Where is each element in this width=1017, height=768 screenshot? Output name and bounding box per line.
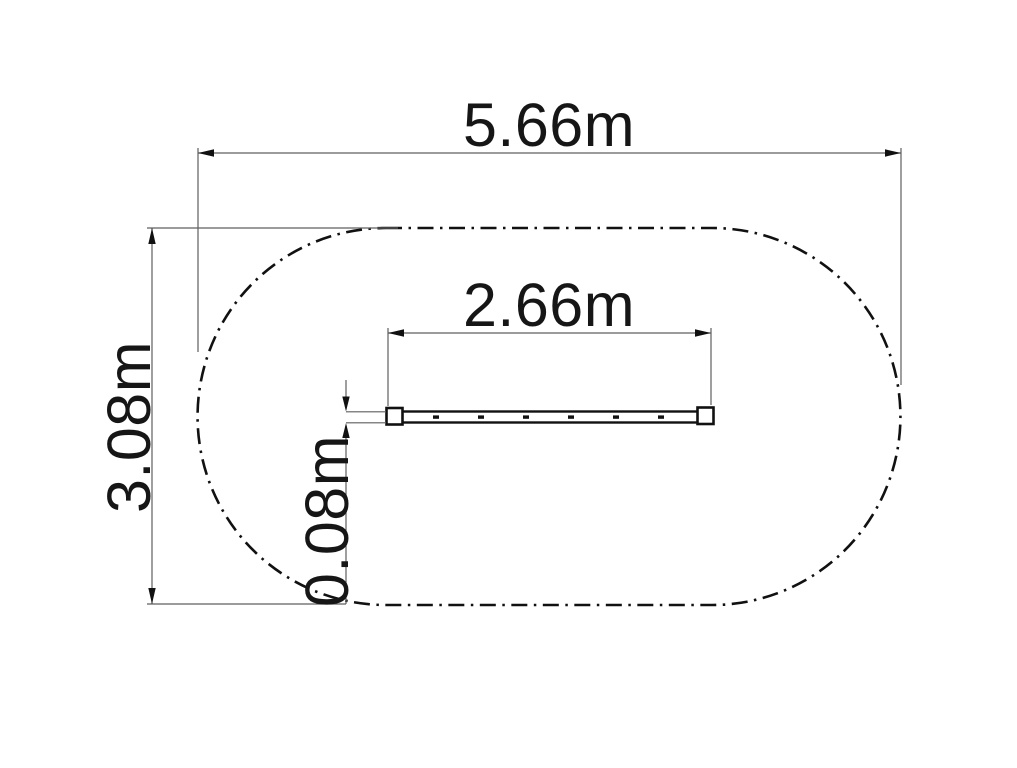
dimension-label-beam-width: 0.08m — [293, 435, 361, 607]
dimension-label-overall-width: 5.66m — [463, 91, 635, 159]
beam-tick — [523, 415, 529, 418]
cad-drawing-canvas: 5.66m 3.08m 2.66m — [0, 0, 1017, 768]
arrowhead-up — [148, 228, 155, 244]
arrowhead-right — [885, 149, 901, 156]
dimension-label-overall-height: 3.08m — [95, 341, 163, 513]
beam-end-cap-right — [698, 408, 714, 425]
beam-tick — [613, 415, 619, 418]
beam-tick — [433, 415, 439, 418]
arrowhead-right — [695, 329, 711, 336]
dimension-beam-length: 2.66m — [388, 271, 711, 406]
arrowhead-left — [388, 329, 404, 336]
beam-tick — [478, 415, 484, 418]
beam-tick — [658, 415, 664, 418]
dimension-beam-width: 0.08m — [293, 380, 386, 607]
arrowhead-down — [342, 397, 349, 412]
arrowhead-left — [198, 149, 214, 156]
drawing-page: 5.66m 3.08m 2.66m — [0, 0, 1017, 768]
balance-beam — [387, 408, 714, 425]
beam-body — [402, 412, 698, 423]
dimension-label-beam-length: 2.66m — [463, 271, 635, 339]
arrowhead-down — [148, 588, 155, 604]
beam-tick — [568, 415, 574, 418]
beam-end-cap-left — [387, 408, 403, 425]
dimension-overall-width: 5.66m — [198, 91, 901, 385]
